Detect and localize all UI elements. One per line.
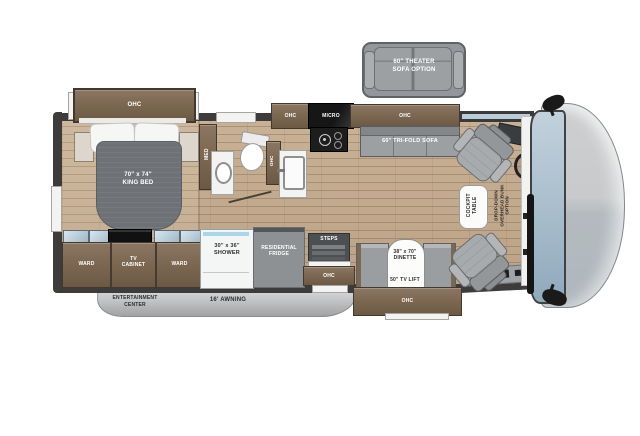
burner-small-icon [334, 141, 342, 149]
fridge-label: RESIDENTIAL FRIDGE [254, 245, 304, 258]
fridge-handle [254, 228, 304, 232]
tv-lift-label: 50" TV LIFT [378, 277, 432, 283]
step-tread [312, 245, 345, 249]
kitchen-ohc-top: OHC [350, 104, 460, 128]
entry-ohc: OHC [303, 266, 355, 286]
awning-label: 16' AWNING [192, 297, 264, 305]
steps: STEPS [308, 233, 350, 262]
dinette-ohc: OHC [353, 287, 462, 316]
bath-sink [215, 162, 232, 184]
burner-small-icon [334, 132, 342, 140]
nightstand-right [179, 132, 199, 162]
theater-sofa: 60" THEATER SOFA OPTION [362, 42, 466, 98]
wardrobe-row: WARD TV CABINET WARD [62, 242, 203, 288]
cab-side-window-glass [462, 114, 530, 119]
step-tread [312, 257, 345, 260]
step-tread [312, 251, 345, 255]
shower: 30" x 36" SHOWER [200, 229, 254, 289]
entry-exterior-door [312, 285, 348, 293]
kitchen-ohc-left: OHC [271, 103, 310, 129]
bath-ohc-label: OHC [269, 148, 275, 174]
kitchen-ohc-left-label: OHC [272, 113, 309, 119]
tv-cabinet-label: TV CABINET [112, 256, 155, 269]
entry-ohc-label: OHC [304, 273, 354, 279]
rv-floorplan: 60" THEATER SOFA OPTION OUTSIDE ENTERTAI… [0, 0, 640, 436]
cooktop [310, 127, 348, 152]
ward-left-label: WARD [63, 261, 110, 267]
shower-label: 30" x 36" SHOWER [201, 243, 253, 257]
dinette-exterior-window [385, 313, 449, 320]
ward-right-label: WARD [157, 261, 202, 267]
steps-label: STEPS [309, 236, 349, 242]
kitchen-faucet [277, 169, 285, 172]
dinette-ohc-label: OHC [354, 298, 461, 304]
shower-threshold [203, 272, 249, 273]
cockpit-table-label: COCKPIT TABLE [466, 184, 479, 226]
rear-window [51, 186, 62, 232]
kitchen-ohc-top-label: OHC [351, 113, 459, 119]
trifold-sofa-label: 60" TRI-FOLD SOFA [361, 138, 459, 145]
shower-glass-strip [203, 232, 249, 236]
bedroom-ohc-label: OHC [75, 102, 194, 110]
microwave: MICRO [308, 103, 354, 129]
trifold-sofa-back [361, 127, 459, 136]
bathroom-window [216, 112, 256, 123]
med-cabinet-label: MED [204, 140, 210, 168]
bunk-option-label: DROP-DOWN OVERHEAD BUNK OPTION [494, 177, 511, 233]
king-bed-label: 70" x 74" KING BED [96, 172, 180, 187]
windshield [530, 110, 566, 304]
microwave-label: MICRO [309, 113, 353, 119]
burner-large-icon [319, 134, 331, 146]
theater-sofa-label: 60" THEATER SOFA OPTION [364, 59, 464, 74]
kitchen-sink [283, 156, 305, 190]
windshield-pillar [527, 194, 534, 294]
fridge: RESIDENTIAL FRIDGE [253, 227, 305, 288]
dinette-size-label: 38" x 70" DINETTE [380, 249, 430, 262]
